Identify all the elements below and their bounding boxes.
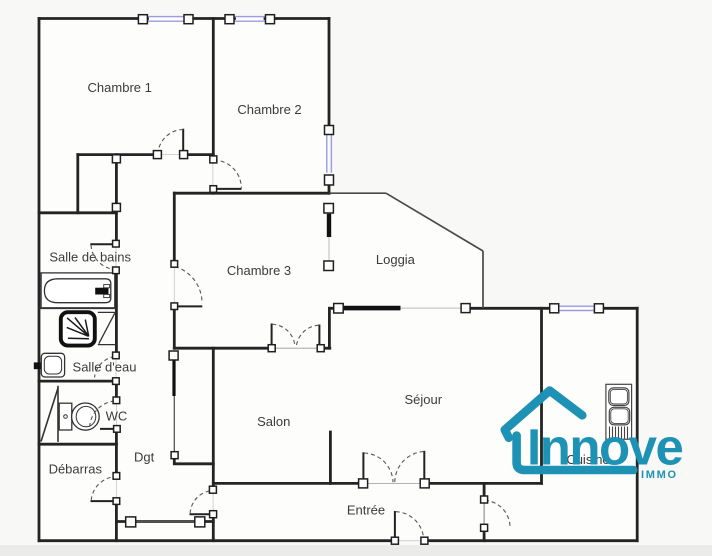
svg-text:Innove: Innove bbox=[527, 419, 682, 476]
svg-text:Entrée: Entrée bbox=[347, 503, 385, 518]
svg-text:Chambre 1: Chambre 1 bbox=[88, 80, 152, 95]
svg-text:Chambre 2: Chambre 2 bbox=[237, 102, 301, 117]
svg-text:IMMO: IMMO bbox=[641, 469, 678, 481]
svg-text:WC: WC bbox=[106, 409, 128, 424]
svg-text:Salle de bains: Salle de bains bbox=[49, 250, 131, 265]
svg-text:Loggia: Loggia bbox=[376, 252, 416, 267]
svg-text:Débarras: Débarras bbox=[49, 462, 103, 477]
svg-text:Dgt: Dgt bbox=[134, 450, 155, 465]
svg-text:Séjour: Séjour bbox=[405, 392, 443, 407]
svg-text:Salle d'eau: Salle d'eau bbox=[73, 360, 137, 375]
svg-text:Chambre 3: Chambre 3 bbox=[227, 263, 291, 278]
svg-text:Salon: Salon bbox=[257, 414, 290, 429]
